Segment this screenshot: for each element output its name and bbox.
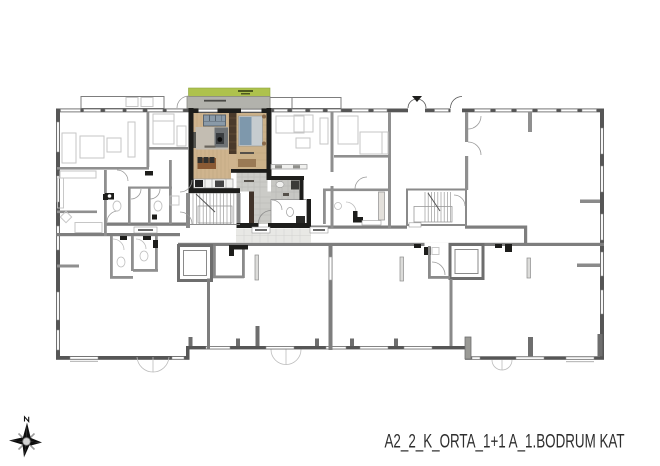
svg-text:A2_2_K_ORTA_1+1 A_1.BODRUM KAT: A2_2_K_ORTA_1+1 A_1.BODRUM KAT [385, 431, 625, 453]
